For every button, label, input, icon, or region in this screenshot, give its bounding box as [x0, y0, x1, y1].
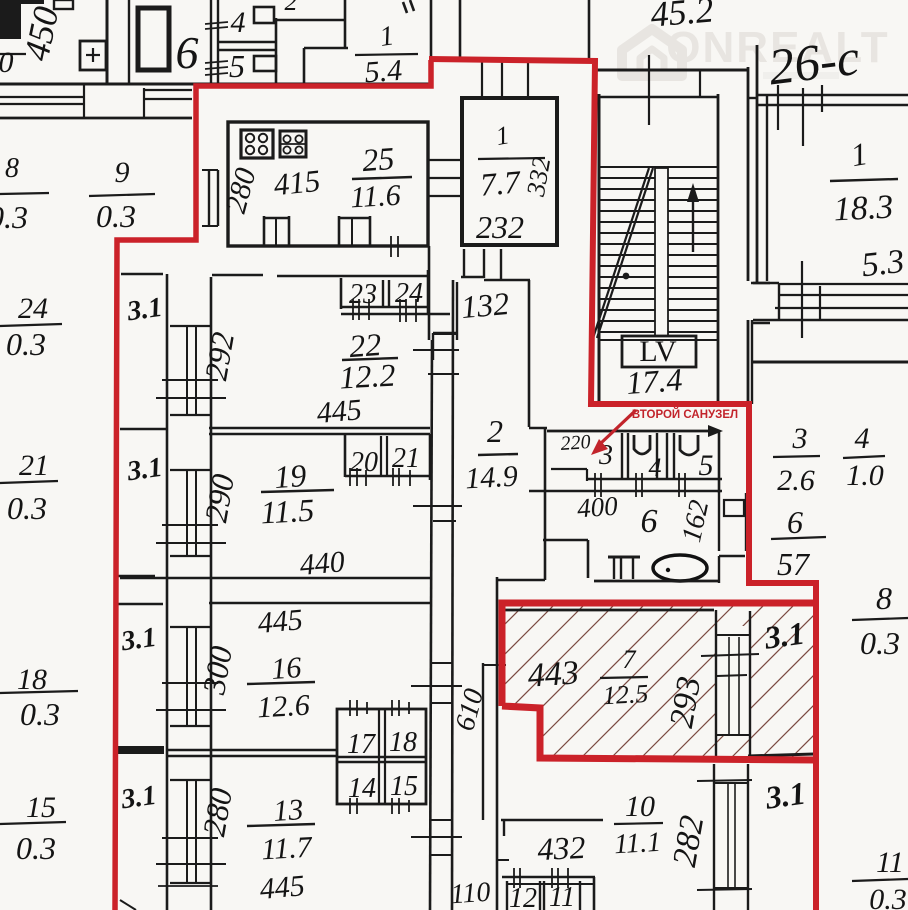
svg-text:15: 15	[26, 791, 56, 824]
svg-text:5: 5	[699, 449, 714, 482]
svg-text:415: 415	[272, 163, 322, 203]
svg-text:13: 13	[272, 793, 304, 828]
svg-text:9: 9	[115, 156, 130, 189]
svg-text:2.6: 2.6	[777, 464, 815, 497]
svg-text:2: 2	[285, 0, 298, 16]
svg-text:3.1: 3.1	[124, 452, 164, 488]
svg-text:25: 25	[361, 140, 395, 178]
svg-text:0.3: 0.3	[0, 199, 28, 235]
svg-text:3.1: 3.1	[118, 622, 158, 658]
svg-text:12.6: 12.6	[256, 689, 310, 725]
svg-text:440: 440	[298, 545, 346, 582]
svg-text:0.3: 0.3	[20, 696, 60, 732]
svg-text:3.1: 3.1	[124, 292, 164, 328]
svg-text:4: 4	[855, 422, 870, 455]
svg-text:432: 432	[537, 829, 587, 867]
svg-text:0.3: 0.3	[869, 883, 907, 910]
svg-text:232: 232	[476, 209, 524, 245]
svg-text:3.1: 3.1	[761, 614, 807, 655]
svg-text:8: 8	[5, 153, 19, 184]
svg-text:15: 15	[390, 771, 418, 802]
svg-text:14.9: 14.9	[464, 460, 518, 496]
svg-text:17: 17	[347, 729, 376, 760]
svg-text:110: 110	[449, 877, 491, 910]
svg-text:445: 445	[256, 603, 304, 640]
svg-text:8: 8	[876, 580, 892, 616]
svg-text:17.4: 17.4	[625, 361, 683, 401]
svg-text:445: 445	[315, 393, 363, 430]
svg-text:0.3: 0.3	[96, 198, 136, 234]
svg-text:11.6: 11.6	[350, 179, 402, 215]
svg-text:11.1: 11.1	[613, 827, 661, 860]
svg-text:11.5: 11.5	[260, 492, 315, 531]
svg-text:16: 16	[270, 651, 302, 686]
svg-text:11.7: 11.7	[261, 831, 315, 867]
svg-text:18.3: 18.3	[833, 188, 894, 228]
svg-text:132: 132	[460, 285, 511, 325]
svg-text:20: 20	[350, 447, 378, 478]
svg-text:6: 6	[787, 504, 803, 540]
svg-text:7.7: 7.7	[479, 163, 524, 203]
svg-text:ВТОРОЙ САНУЗЕЛ: ВТОРОЙ САНУЗЕЛ	[632, 408, 738, 421]
svg-text:3.1: 3.1	[118, 780, 158, 816]
svg-text:3.1: 3.1	[762, 774, 808, 815]
svg-text:3: 3	[792, 422, 808, 455]
svg-text:12.5: 12.5	[602, 679, 649, 710]
svg-text:18: 18	[389, 727, 417, 758]
svg-text:2: 2	[487, 413, 503, 449]
svg-text:57: 57	[777, 546, 811, 582]
svg-text:220: 220	[560, 431, 591, 455]
svg-text:11: 11	[876, 846, 904, 879]
svg-text:11: 11	[549, 882, 575, 910]
svg-text:4: 4	[231, 6, 246, 39]
svg-text:0.3: 0.3	[7, 490, 47, 526]
svg-text:7: 7	[623, 645, 637, 674]
svg-text:445: 445	[258, 869, 306, 906]
svg-text:14: 14	[348, 773, 376, 804]
svg-text:0: 0	[0, 46, 14, 79]
svg-text:45.2: 45.2	[649, 0, 715, 35]
svg-text:24: 24	[18, 292, 48, 325]
svg-text:0.3: 0.3	[6, 326, 46, 362]
svg-text:21: 21	[19, 449, 49, 482]
svg-text:10: 10	[625, 790, 655, 823]
svg-text:6: 6	[176, 27, 199, 78]
svg-text:21: 21	[392, 443, 420, 474]
svg-text:400: 400	[576, 491, 619, 524]
svg-text:1.0: 1.0	[846, 459, 884, 492]
svg-text:0.3: 0.3	[860, 625, 900, 661]
svg-text:6: 6	[641, 503, 658, 540]
svg-text:5: 5	[229, 48, 245, 84]
svg-text:19: 19	[273, 457, 307, 495]
svg-text:443: 443	[527, 654, 580, 694]
svg-text:0.3: 0.3	[16, 830, 56, 866]
svg-text:12.2: 12.2	[339, 357, 397, 396]
svg-text:26-с: 26-с	[766, 30, 863, 97]
svg-text:5.3: 5.3	[860, 243, 906, 284]
svg-text:4: 4	[649, 453, 662, 482]
